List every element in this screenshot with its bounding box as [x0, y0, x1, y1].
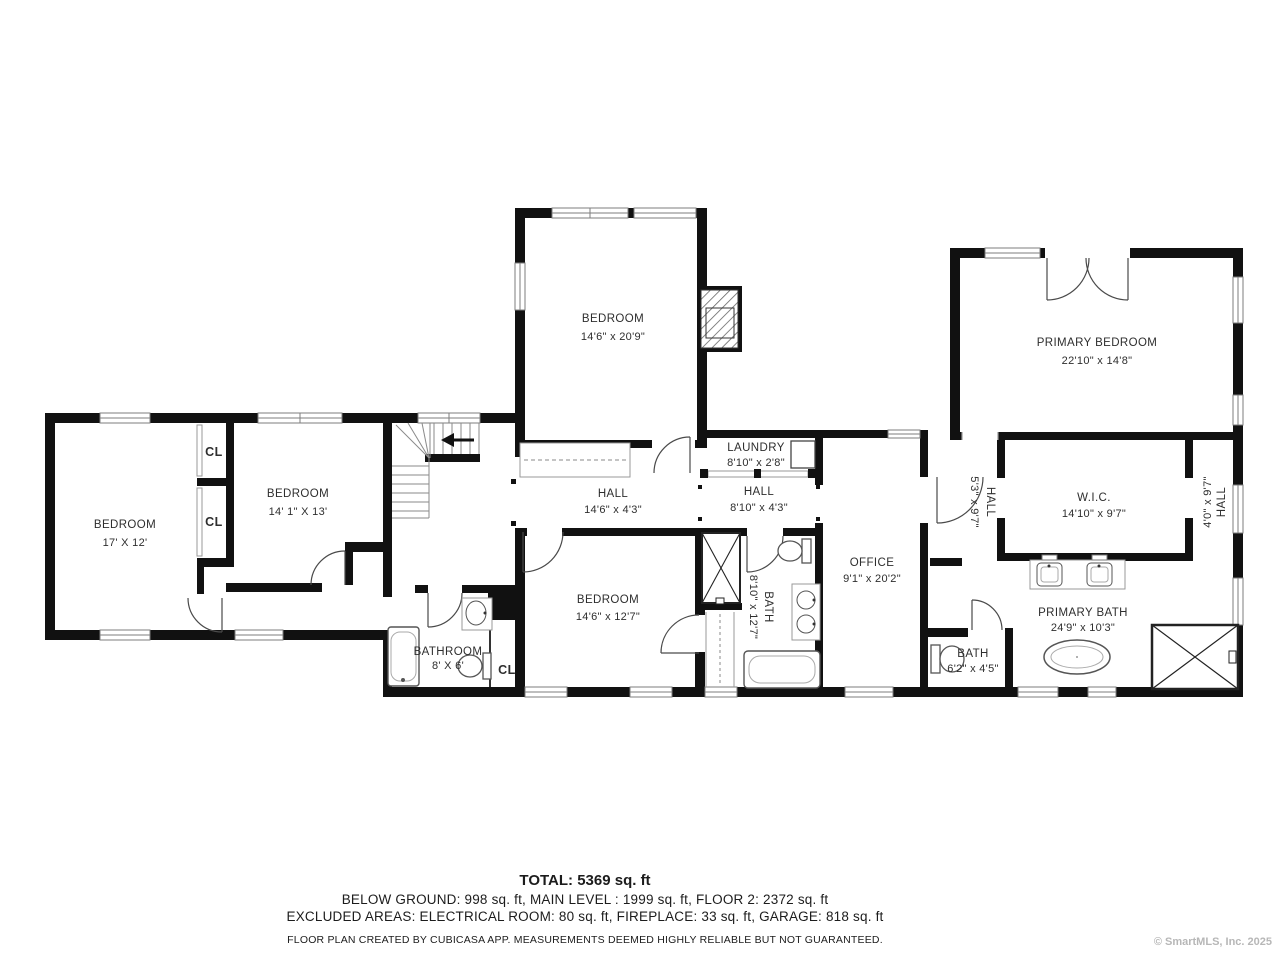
freestanding-tub-icon: [1044, 640, 1110, 674]
washer-icon: [791, 441, 815, 468]
toilet-icon: [778, 539, 811, 563]
label-closet2: CL: [205, 515, 223, 529]
area-summary: TOTAL: 5369 sq. ft BELOW GROUND: 998 sq.…: [0, 872, 1170, 946]
label-wic-name: W.I.C.: [1077, 492, 1111, 504]
shower-stall-icon: [702, 533, 740, 604]
label-bedroom-left-dims: 17' X 12': [103, 537, 148, 549]
label-bedroom-top-dims: 14'6" x 20'9": [581, 331, 645, 343]
label-hall-left-vert-name: HALL: [984, 487, 996, 518]
label-primary-bath-dims: 24'9" x 10'3": [1051, 622, 1115, 634]
label-wic-dims: 14'10" x 9'7": [1062, 508, 1126, 520]
label-hall-right-vert-dims: 4'0" x 9'7": [1202, 476, 1214, 527]
watermark-text: © SmartMLS, Inc. 2025: [1154, 936, 1272, 948]
label-closet3: CL: [498, 663, 516, 677]
label-bathroom-name: BATHROOM: [414, 646, 483, 658]
label-hall-left-vert-dims: 5'3" x 9'7": [968, 476, 980, 527]
label-hall-right-vert-name: HALL: [1216, 487, 1228, 518]
sink-icon: [462, 598, 492, 630]
label-primary-bedroom-dims: 22'10" x 14'8": [1062, 355, 1133, 367]
label-bath-small-name: BATH: [957, 648, 988, 660]
label-office-name: OFFICE: [850, 557, 895, 569]
stairs-direction-arrow: [441, 433, 474, 447]
label-hall-small-dims: 8'10" x 4'3": [730, 502, 788, 514]
doors: [188, 258, 1128, 653]
label-primary-bedroom-name: PRIMARY BEDROOM: [1037, 337, 1158, 349]
label-bath-vert-name: BATH: [762, 591, 774, 622]
fireplace: [697, 286, 742, 352]
label-laundry-name: LAUNDRY: [727, 442, 785, 454]
label-hall-small-name: HALL: [744, 486, 775, 498]
label-bedroom-bottom-dims: 14'6" x 12'7": [576, 611, 640, 623]
label-hall-main-dims: 14'6" x 4'3": [584, 504, 642, 516]
double-sink-vanity-icon: [1030, 555, 1125, 589]
label-bath-vert-dims: 8'10" x 12'7": [747, 575, 759, 639]
label-office-dims: 9'1" x 20'2": [843, 573, 901, 585]
floor-plan-page: BEDROOM 14'6" x 20'9" PRIMARY BEDROOM 22…: [0, 0, 1280, 960]
excluded-areas-text: EXCLUDED AREAS: ELECTRICAL ROOM: 80 sq. …: [0, 909, 1170, 924]
shower-stall-icon: [1152, 625, 1238, 689]
bathtub-icon: [744, 651, 820, 688]
total-area-text: TOTAL: 5369 sq. ft: [0, 872, 1170, 889]
disclaimer-text: FLOOR PLAN CREATED BY CUBICASA APP. MEAS…: [0, 934, 1170, 946]
label-primary-bath-name: PRIMARY BATH: [1038, 607, 1128, 619]
label-bath-small-dims: 6'2" x 4'5": [947, 663, 998, 675]
room-labels: BEDROOM 14'6" x 20'9" PRIMARY BEDROOM 22…: [94, 313, 1228, 677]
double-sink-vanity-icon: [792, 584, 820, 640]
floor-plan-svg: BEDROOM 14'6" x 20'9" PRIMARY BEDROOM 22…: [0, 0, 1280, 960]
stairs: [392, 423, 479, 518]
label-bedroom-left2-dims: 14' 1" X 13': [269, 506, 328, 518]
label-bedroom-left2-name: BEDROOM: [267, 488, 329, 500]
label-closet1: CL: [205, 445, 223, 459]
label-laundry-dims: 8'10" x 2'8": [727, 457, 785, 469]
label-hall-main-name: HALL: [598, 488, 629, 500]
levels-area-text: BELOW GROUND: 998 sq. ft, MAIN LEVEL : 1…: [0, 892, 1170, 907]
label-bedroom-bottom-name: BEDROOM: [577, 594, 639, 606]
label-bathroom-dims: 8' X 6': [432, 660, 464, 672]
label-bedroom-top-name: BEDROOM: [582, 313, 644, 325]
label-bedroom-left-name: BEDROOM: [94, 519, 156, 531]
